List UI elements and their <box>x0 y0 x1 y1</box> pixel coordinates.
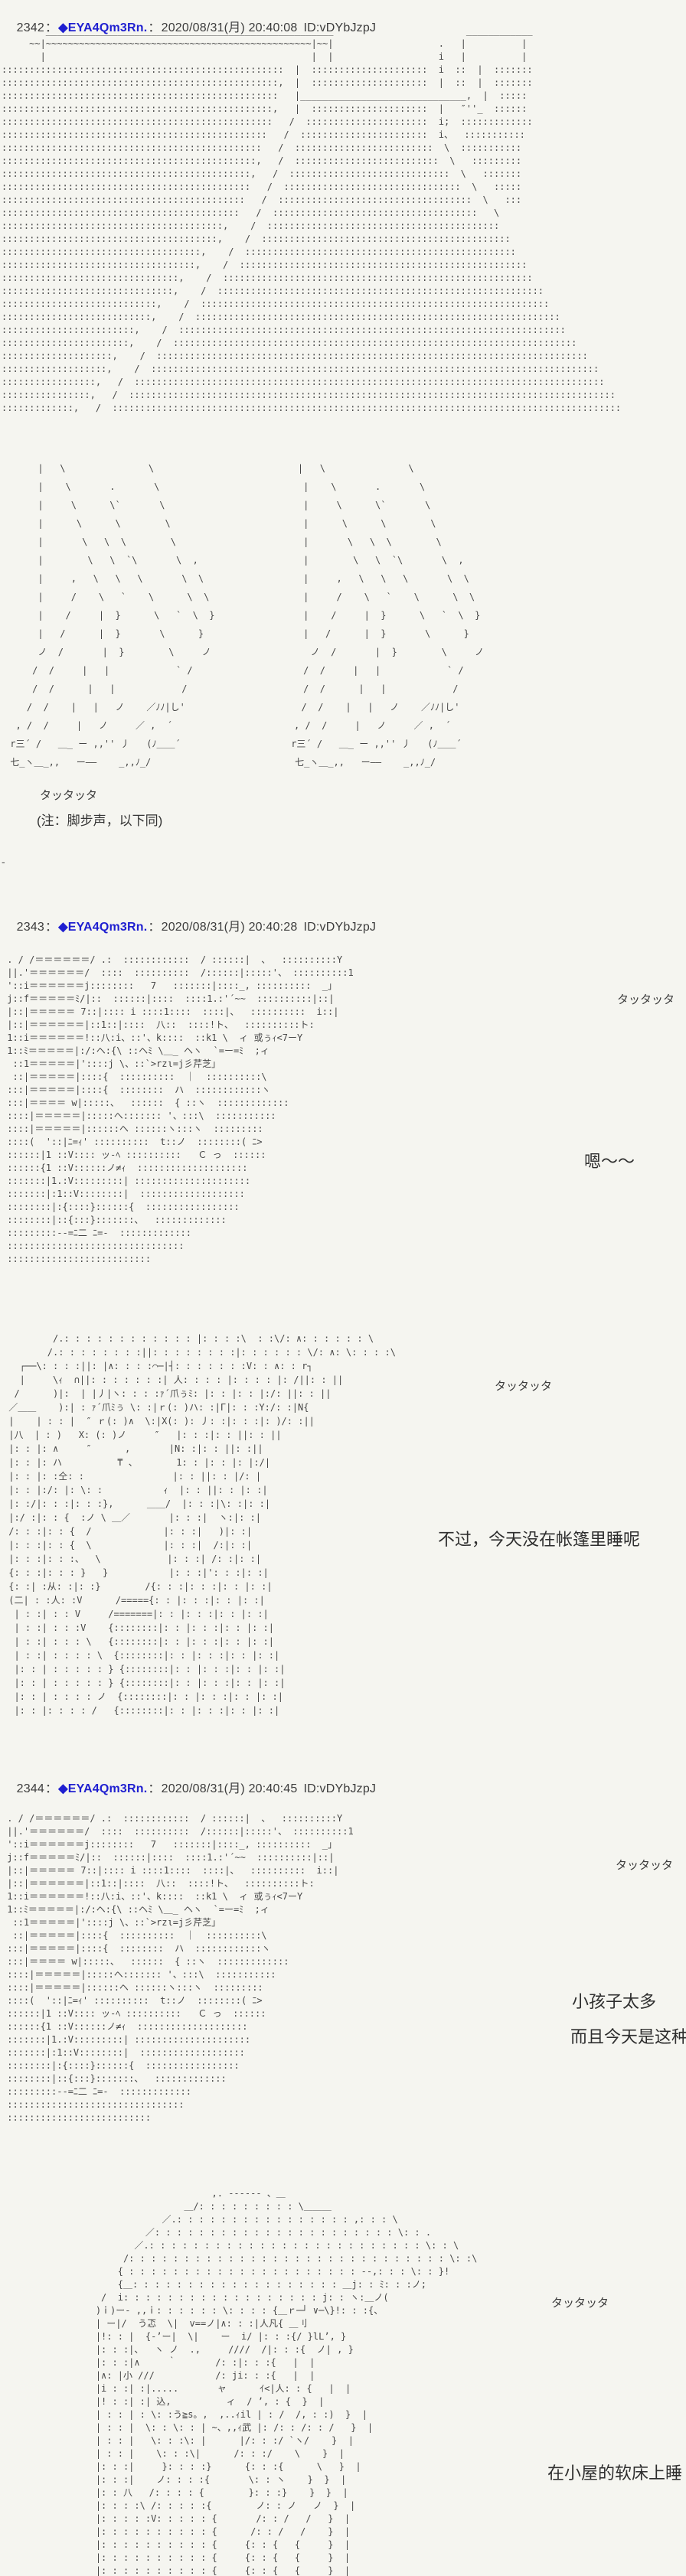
thread-page: 2342：◆EYA4Qm3Rn.：2020/08/31(月) 20:40:08I… <box>0 0 686 2576</box>
post-number: 2343 <box>17 921 44 934</box>
separator: ： <box>45 921 57 934</box>
post-header: 2344：◆EYA4Qm3Rn.：2020/08/31(月) 20:40:45I… <box>2 1764 376 1810</box>
speech-tent: 不过，今天没在帐篷里睡呢 <box>438 1526 640 1550</box>
ascii-art-field-scene: ________________________________________… <box>2 24 621 415</box>
ascii-art-garden-scene: /.: : : : : : : : : : : : |: : : :\ : :\… <box>3 1332 396 1717</box>
post-datetime: 2020/08/31(月) 20:40:45 <box>162 1782 298 1795</box>
post-number: 2344 <box>17 1782 44 1795</box>
sfx-footsteps: タッタッタ <box>551 2294 609 2310</box>
ascii-art-sleeping-figure: ,. -‐‐‐‐- 、＿ ＿/: : : : : : : : : \＿＿＿ ／.… <box>2 2187 477 2576</box>
ascii-art-camp-scene: . / /＝＝＝＝＝＝/ .: :::::::::::: / ::::::| 、… <box>2 954 354 1266</box>
separator: ： <box>45 1782 57 1795</box>
speech-kids-1: 小孩子太多 <box>572 1988 656 2013</box>
speech-kids-2: 而且今天是这种 <box>570 2023 686 2048</box>
ascii-art-camp-scene-2: . / /＝＝＝＝＝＝/ .: :::::::::::: / ::::::| 、… <box>2 1812 354 2124</box>
post-id: ID:vDYbJzpJ <box>303 1782 376 1795</box>
separator: ： <box>148 921 160 934</box>
stray-dash: - <box>2 856 5 868</box>
separator: ： <box>148 1782 160 1795</box>
tripcode: ◆EYA4Qm3Rn. <box>58 1782 147 1795</box>
speech-bed: 在小屋的软床上睡 <box>547 2460 682 2484</box>
sfx-footsteps: タッタッタ <box>40 787 97 803</box>
sfx-footsteps: タッタッタ <box>617 991 675 1007</box>
speech-hum: 嗯～～ <box>584 1148 635 1172</box>
sfx-footsteps: タッタッタ <box>616 1857 673 1873</box>
translator-note: (注：脚步声，以下同) <box>37 810 162 829</box>
post-datetime: 2020/08/31(月) 20:40:28 <box>162 921 298 934</box>
ascii-art-running-legs: | \ \ | \ \ | \ . \ | \ . \ | \ \` \ <box>5 459 484 771</box>
post-header: 2343：◆EYA4Qm3Rn.：2020/08/31(月) 20:40:28I… <box>2 902 376 948</box>
tripcode: ◆EYA4Qm3Rn. <box>58 921 147 934</box>
sfx-footsteps: タッタッタ <box>495 1378 552 1394</box>
post-id: ID:vDYbJzpJ <box>303 921 376 934</box>
